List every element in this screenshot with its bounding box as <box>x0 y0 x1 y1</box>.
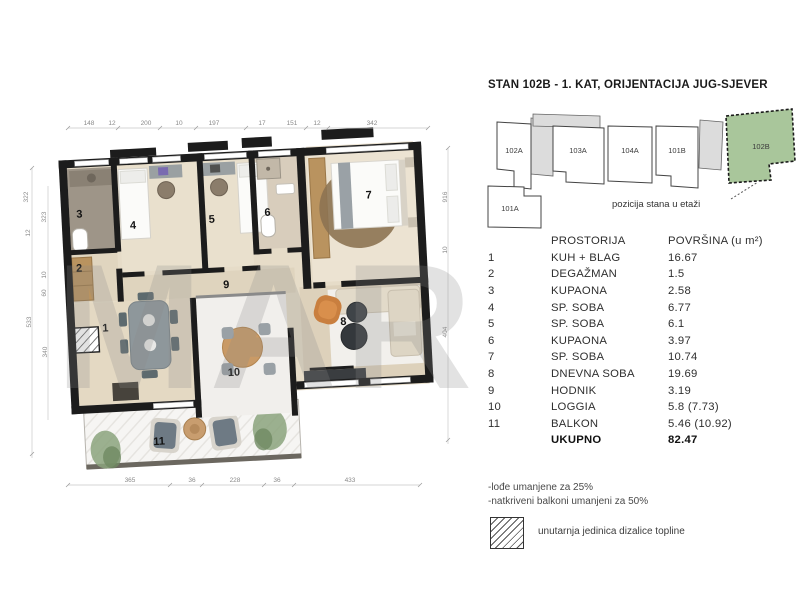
row-num: 9 <box>488 385 551 397</box>
row-name: SP. SOBA <box>551 351 668 363</box>
floor-plan: 1 2 3 4 5 6 7 8 9 10 11 <box>58 125 438 471</box>
dim-top-9: 342 <box>367 120 378 127</box>
row-area: 2.58 <box>668 285 796 297</box>
room-label-3: 3 <box>76 209 83 221</box>
row-area: 10.74 <box>668 351 796 363</box>
table-header: PROSTORIJA POVRŠINA (u m²) <box>488 233 796 250</box>
dim-bottom-3: 228 <box>230 477 241 484</box>
row-name: BALKON <box>551 418 668 430</box>
dim-bottom-1: 365 <box>125 477 136 484</box>
room-label-9: 9 <box>223 279 230 291</box>
table-row: 4 SP. SOBA 6.77 <box>488 299 796 316</box>
header-area: POVRŠINA (u m²) <box>668 235 796 247</box>
header-room: PROSTORIJA <box>551 235 668 247</box>
unit-label-104a: 104A <box>621 146 639 155</box>
room-label-8: 8 <box>340 316 347 328</box>
row-name: SP. SOBA <box>551 302 668 314</box>
row-name: KUH + BLAG <box>551 252 668 264</box>
table-row: 7 SP. SOBA 10.74 <box>488 349 796 366</box>
total-value: 82.47 <box>668 434 796 446</box>
lounge-chair-icon <box>207 413 242 451</box>
legend-text: unutarnja jedinica dizalice topline <box>538 526 685 537</box>
dim-left-7: 340 <box>42 346 49 357</box>
table-row: 3 KUPAONA 2.58 <box>488 283 796 300</box>
total-label: UKUPNO <box>551 434 668 446</box>
unit-label-103a: 103A <box>569 146 587 155</box>
dim-bottom-2: 36 <box>188 477 196 484</box>
room-label-1: 1 <box>102 322 109 334</box>
row-area: 3.19 <box>668 385 796 397</box>
unit-103a <box>553 126 604 184</box>
unit-label-102b: 102B <box>752 142 770 151</box>
note-line: -natkriveni balkoni umanjeni za 50% <box>488 495 648 509</box>
table-row: 5 SP. SOBA 6.1 <box>488 316 796 333</box>
room-label-6: 6 <box>264 207 271 219</box>
table-row: 1 KUH + BLAG 16.67 <box>488 250 796 267</box>
table-row: 2 DEGAŽMAN 1.5 <box>488 266 796 283</box>
unit-label-101b: 101B <box>668 146 686 155</box>
dim-left-1: 322 <box>23 191 30 202</box>
row-num: 10 <box>488 401 551 413</box>
row-name: LOGGIA <box>551 401 668 413</box>
row-area: 16.67 <box>668 252 796 264</box>
stairwell-shape <box>533 114 600 128</box>
note-line: -lođe umanjene za 25% <box>488 481 648 495</box>
room-label-11: 11 <box>153 435 165 448</box>
dim-left-6: 60 <box>41 289 48 297</box>
table-row: 6 KUPAONA 3.97 <box>488 333 796 350</box>
table-total-row: UKUPNO 82.47 <box>488 432 796 449</box>
row-area: 6.1 <box>668 318 796 330</box>
row-name: KUPAONA <box>551 285 668 297</box>
table-row: 11 BALKON 5.46 (10.92) <box>488 416 796 433</box>
dim-right-2: 10 <box>442 246 449 254</box>
position-caption: pozicija stana u etaži <box>612 199 700 210</box>
row-area: 6.77 <box>668 302 796 314</box>
stairwell-shape <box>699 120 723 170</box>
unit-label-102a: 102A <box>505 146 523 155</box>
row-area: 5.8 (7.73) <box>668 401 796 413</box>
row-num: 1 <box>488 252 551 264</box>
dim-right-1: 916 <box>442 191 449 202</box>
area-table: PROSTORIJA POVRŠINA (u m²) 1 KUH + BLAG … <box>488 233 796 449</box>
table-row: 9 HODNIK 3.19 <box>488 382 796 399</box>
unit-101b <box>656 126 698 188</box>
row-area: 1.5 <box>668 268 796 280</box>
row-area: 3.97 <box>668 335 796 347</box>
row-num: 2 <box>488 268 551 280</box>
dim-top-4: 10 <box>175 120 183 127</box>
balcony-table-icon <box>183 417 206 440</box>
dim-top-5: 197 <box>209 120 220 127</box>
dim-left-5: 10 <box>41 271 48 279</box>
row-num: 3 <box>488 285 551 297</box>
dim-bottom-5: 433 <box>345 477 356 484</box>
dim-top-3: 200 <box>141 120 152 127</box>
notes: -lođe umanjene za 25% -natkriveni balkon… <box>488 481 648 509</box>
unit-102a <box>497 122 531 189</box>
row-area: 19.69 <box>668 368 796 380</box>
page-title: STAN 102B - 1. KAT, ORIJENTACIJA JUG-SJE… <box>488 79 800 91</box>
row-num: 11 <box>488 418 551 430</box>
dim-left-3: 533 <box>26 316 33 327</box>
row-num: 7 <box>488 351 551 363</box>
row-area: 5.46 (10.92) <box>668 418 796 430</box>
room-label-2: 2 <box>76 263 83 275</box>
table-row: 10 LOGGIA 5.8 (7.73) <box>488 399 796 416</box>
room-label-7: 7 <box>365 189 372 201</box>
row-name: KUPAONA <box>551 335 668 347</box>
table-row: 8 DNEVNA SOBA 19.69 <box>488 366 796 383</box>
dim-top-8: 12 <box>313 120 321 127</box>
row-num: 4 <box>488 302 551 314</box>
dim-left-4: 323 <box>41 211 48 222</box>
row-num: 8 <box>488 368 551 380</box>
dim-top-7: 151 <box>287 120 298 127</box>
page: 1 2 3 4 5 6 7 8 9 10 11 <box>0 0 801 594</box>
row-num: 6 <box>488 335 551 347</box>
dim-right-3: 404 <box>442 326 449 337</box>
hatch-swatch-icon <box>490 517 524 549</box>
unit-label-101a: 101A <box>501 204 519 213</box>
position-diagram: 102A 103A 104A 101B 102B 101A pozicija s… <box>488 109 795 228</box>
dim-top-6: 17 <box>258 120 266 127</box>
row-name: DEGAŽMAN <box>551 268 668 280</box>
dim-top-2: 12 <box>108 120 116 127</box>
room-label-5: 5 <box>208 214 215 226</box>
row-num: 5 <box>488 318 551 330</box>
dim-bottom-4: 36 <box>273 477 281 484</box>
leader-line <box>731 182 758 199</box>
row-name: HODNIK <box>551 385 668 397</box>
dim-left-2: 12 <box>25 229 32 237</box>
row-name: DNEVNA SOBA <box>551 368 668 380</box>
room-label-10: 10 <box>227 366 240 379</box>
row-name: SP. SOBA <box>551 318 668 330</box>
dim-top-1: 148 <box>84 120 95 127</box>
